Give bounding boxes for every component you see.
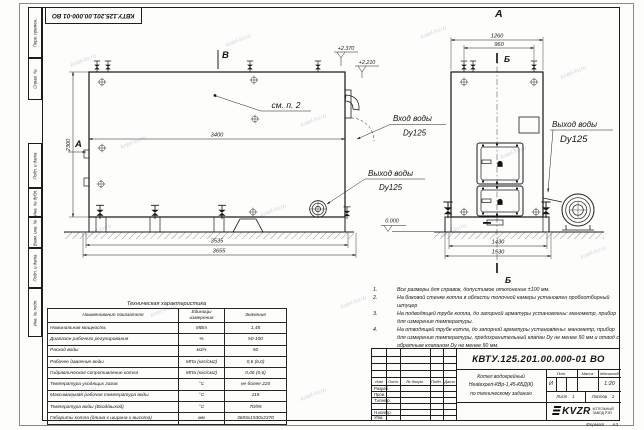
dim-2300: 2300 (66, 138, 72, 152)
top-valves-side (94, 61, 321, 72)
sheet-number: Лист 1 (546, 391, 585, 402)
note-number: 2. (371, 294, 397, 310)
outlet-flange-side (310, 201, 327, 218)
sight-glass-box (519, 117, 539, 133)
param-value: 0,06 (0,6) (225, 368, 287, 379)
table-row: Максимальная рабочая температура воды°С1… (48, 390, 287, 401)
outlet-dn: Dy125 (379, 183, 403, 192)
inlet-label: Вход воды Dy125 (357, 114, 446, 139)
notes-block: 1.Все размеры для справок, допустимое от… (371, 286, 619, 350)
param-name: Номинальная мощность (48, 323, 179, 334)
door-lock-icon (497, 161, 502, 167)
row-tkontr: Т.контр. (372, 397, 400, 403)
product-name: Котел водогрейный Heatexpert-КВр-1,45-КБ… (456, 369, 546, 402)
param-value: 115 (225, 390, 287, 401)
param-unit: МВт (179, 323, 225, 334)
name-line1: Котел водогрейный (477, 373, 525, 381)
view-a-letter-side: А (74, 139, 82, 150)
wall-fitting (84, 178, 89, 186)
callout-note2: см. п. 2 (214, 94, 311, 111)
format-word: Формат (586, 422, 604, 427)
col-header: Единицы измерения (179, 309, 225, 323)
param-unit: % (179, 334, 225, 345)
note-text: На отводящей трубе котла, до запорной ар… (397, 326, 619, 350)
door-handle (482, 199, 491, 203)
param-value: 0,6 (6,0) (225, 356, 287, 367)
lit-value: И (546, 377, 556, 391)
row-utv: Утв. (372, 415, 400, 420)
boiler-side-view: 3400 В см. п. 2 (64, 46, 446, 258)
ground-hatch-front (434, 233, 604, 240)
col-header: Значение (225, 309, 287, 323)
wall-fitting (84, 150, 89, 158)
param-name: Расход воды (48, 345, 179, 356)
ground-hatch-side (64, 233, 354, 240)
sheets-value: 2 (612, 394, 614, 399)
param-value: 1,45 (225, 323, 287, 334)
front-view-title: А (494, 8, 503, 20)
dim-3655: 3655 (213, 249, 226, 255)
outlet-label-front: Выход воды Dy125 (548, 120, 613, 192)
logo-subtext: ЗАВОД РЭП (593, 411, 614, 415)
table-row: Диапазон рабочего регулирования%50-100 (48, 334, 287, 345)
dim-3400: 3400 (211, 133, 224, 139)
callout-text: см. п. 2 (272, 100, 301, 110)
note-text: На подводящей трубе котла, до запорной а… (397, 310, 619, 326)
param-unit: мм (179, 413, 225, 424)
sheet-value: 1 (572, 394, 574, 399)
logo-bars-icon (552, 406, 561, 416)
format-value: А3 (612, 422, 618, 427)
boiler-front-view: А 1260 960 Б Б (381, 8, 613, 285)
furnace-door-upper (477, 143, 523, 184)
table-row: Габариты котла (длина х ширина х высота)… (48, 413, 287, 424)
param-value: 50-100 (225, 334, 287, 345)
table-row: Температура воды (Вход/выход)°С70/95 (48, 402, 287, 413)
elev-text: 0.000 (385, 219, 399, 225)
skid-frame-side (89, 217, 345, 232)
elev-text: +2.370 (338, 46, 355, 52)
table-row: Температура уходящих газов°Сне более 220 (48, 379, 287, 390)
table-header-row: Наименование показателя Единицы измерени… (48, 309, 287, 323)
door-lock-icon (497, 199, 502, 205)
blower-fan (543, 194, 594, 230)
param-value: не более 220 (225, 379, 287, 390)
table-row: Рабочее давление водыМПа (кгс/см2)0,6 (6… (48, 356, 287, 367)
boiler-body-side (89, 72, 345, 217)
view-b-letter: В (222, 50, 229, 61)
inlet-title: Вход воды (393, 114, 432, 123)
note-item: 4.На отводящей трубе котла, до запорной … (371, 326, 619, 350)
param-unit: °С (179, 402, 225, 413)
table-row: Номинальная мощностьМВт1,45 (48, 323, 287, 334)
note-number: 1. (371, 286, 397, 294)
outlet-title: Выход воды (368, 169, 413, 178)
note-item: 3.На подводящей трубе котла, до запорной… (371, 310, 619, 326)
param-name: Рабочее давление воды (48, 356, 179, 367)
section-b-bottom-letter: Б (505, 275, 511, 285)
table-row: Гидравлическое сопротивление котлаМПа (к… (48, 368, 287, 379)
param-unit: МПа (кгс/см2) (179, 356, 225, 367)
inlet-dn: Dy125 (403, 129, 427, 138)
dim-1430: 1430 (492, 240, 505, 246)
sheets-total: Листов 2 (585, 391, 621, 402)
col-list: Лист (386, 377, 400, 385)
company-logo: KVZR КОТЕЛЬНЫЙ ЗАВОД РЭП (546, 402, 621, 420)
param-unit: °С (179, 379, 225, 390)
param-name: Диапазон рабочего регулирования (48, 334, 179, 345)
col-podp: Подп. (430, 377, 443, 385)
outlet-label-side: Выход воды Dy125 (327, 169, 425, 204)
note-number: 3. (371, 310, 397, 326)
param-name: Температура уходящих газов (48, 379, 179, 390)
elev-text: +2.210 (359, 60, 376, 66)
param-value: 50 (225, 345, 287, 356)
param-name: Максимальная рабочая температура воды (48, 390, 179, 401)
col-header: Наименование показателя (48, 309, 179, 323)
sheet-label: Лист (556, 394, 567, 399)
name-line2: Heatexpert-КВр-1,45-КБД(К) (469, 381, 533, 389)
logo-text: KVZR (562, 406, 590, 417)
param-unit: МПа (кгс/см2) (179, 368, 225, 379)
col-izm: Изм (372, 377, 386, 385)
scale-header: Масштаб (598, 369, 621, 377)
note-text: Все размеры для справок, допустимое откл… (397, 286, 619, 294)
lifting-lug-icons-side (97, 76, 260, 217)
col-data: Дата (443, 377, 456, 385)
drawing-sheet: kotel-kv.ru kotel-kv.ru kotel-kv.ru kote… (0, 0, 644, 430)
param-name: Температура воды (Вход/выход) (48, 402, 179, 413)
table-row: Расход водым3/ч50 (48, 345, 287, 356)
note-text: На боковой стенке котла в области топочн… (397, 294, 619, 310)
callout-dot (214, 94, 217, 97)
tech-table: Техническая характеристика Наименование … (47, 301, 286, 425)
dim-1260: 1260 (491, 34, 504, 40)
note-number: 4. (371, 326, 397, 350)
format-label: Формат А3 (540, 422, 618, 427)
lit-header: Лит. (546, 369, 577, 377)
furnace-door-lower (477, 186, 523, 216)
dim-1530: 1530 (492, 250, 505, 256)
title-block: Изм Лист № докум. Подп. Дата Разраб. Про… (371, 348, 620, 421)
dim-960: 960 (494, 42, 504, 48)
elevation-zero: 0.000 (381, 219, 434, 232)
outlet-title: Выход воды (552, 120, 597, 129)
param-name: Габариты котла (длина х ширина х высота) (48, 413, 179, 424)
elevation-2370: +2.370 (334, 46, 358, 66)
outlet-dn: Dy125 (560, 134, 588, 145)
param-name: Гидравлическое сопротивление котла (48, 368, 179, 379)
param-value: 70/95 (225, 402, 287, 413)
mass-header: Масса (577, 369, 598, 377)
door-handle (482, 160, 491, 164)
scale-value: 1:20 (598, 377, 621, 391)
param-unit: м3/ч (179, 345, 225, 356)
param-value: 3655х1530х2370 (225, 413, 287, 424)
note-item: 2.На боковой стенке котла в области топо… (371, 294, 619, 310)
section-b-top-letter: Б (504, 54, 510, 64)
note-item: 1.Все размеры для справок, допустимое от… (371, 286, 619, 294)
col-doc: № докум. (400, 377, 430, 385)
elevation-2210: +2.210 (355, 60, 379, 78)
tech-table-title: Техническая характеристика (47, 301, 286, 307)
top-valves-front (461, 61, 537, 72)
param-unit: °С (179, 390, 225, 401)
sheets-label: Листов (592, 394, 607, 399)
doc-number: КВТУ.125.201.00.000-01 ВО (456, 349, 621, 369)
name-line3: по техническому заданию (470, 390, 532, 398)
dim-3535: 3535 (211, 239, 224, 245)
